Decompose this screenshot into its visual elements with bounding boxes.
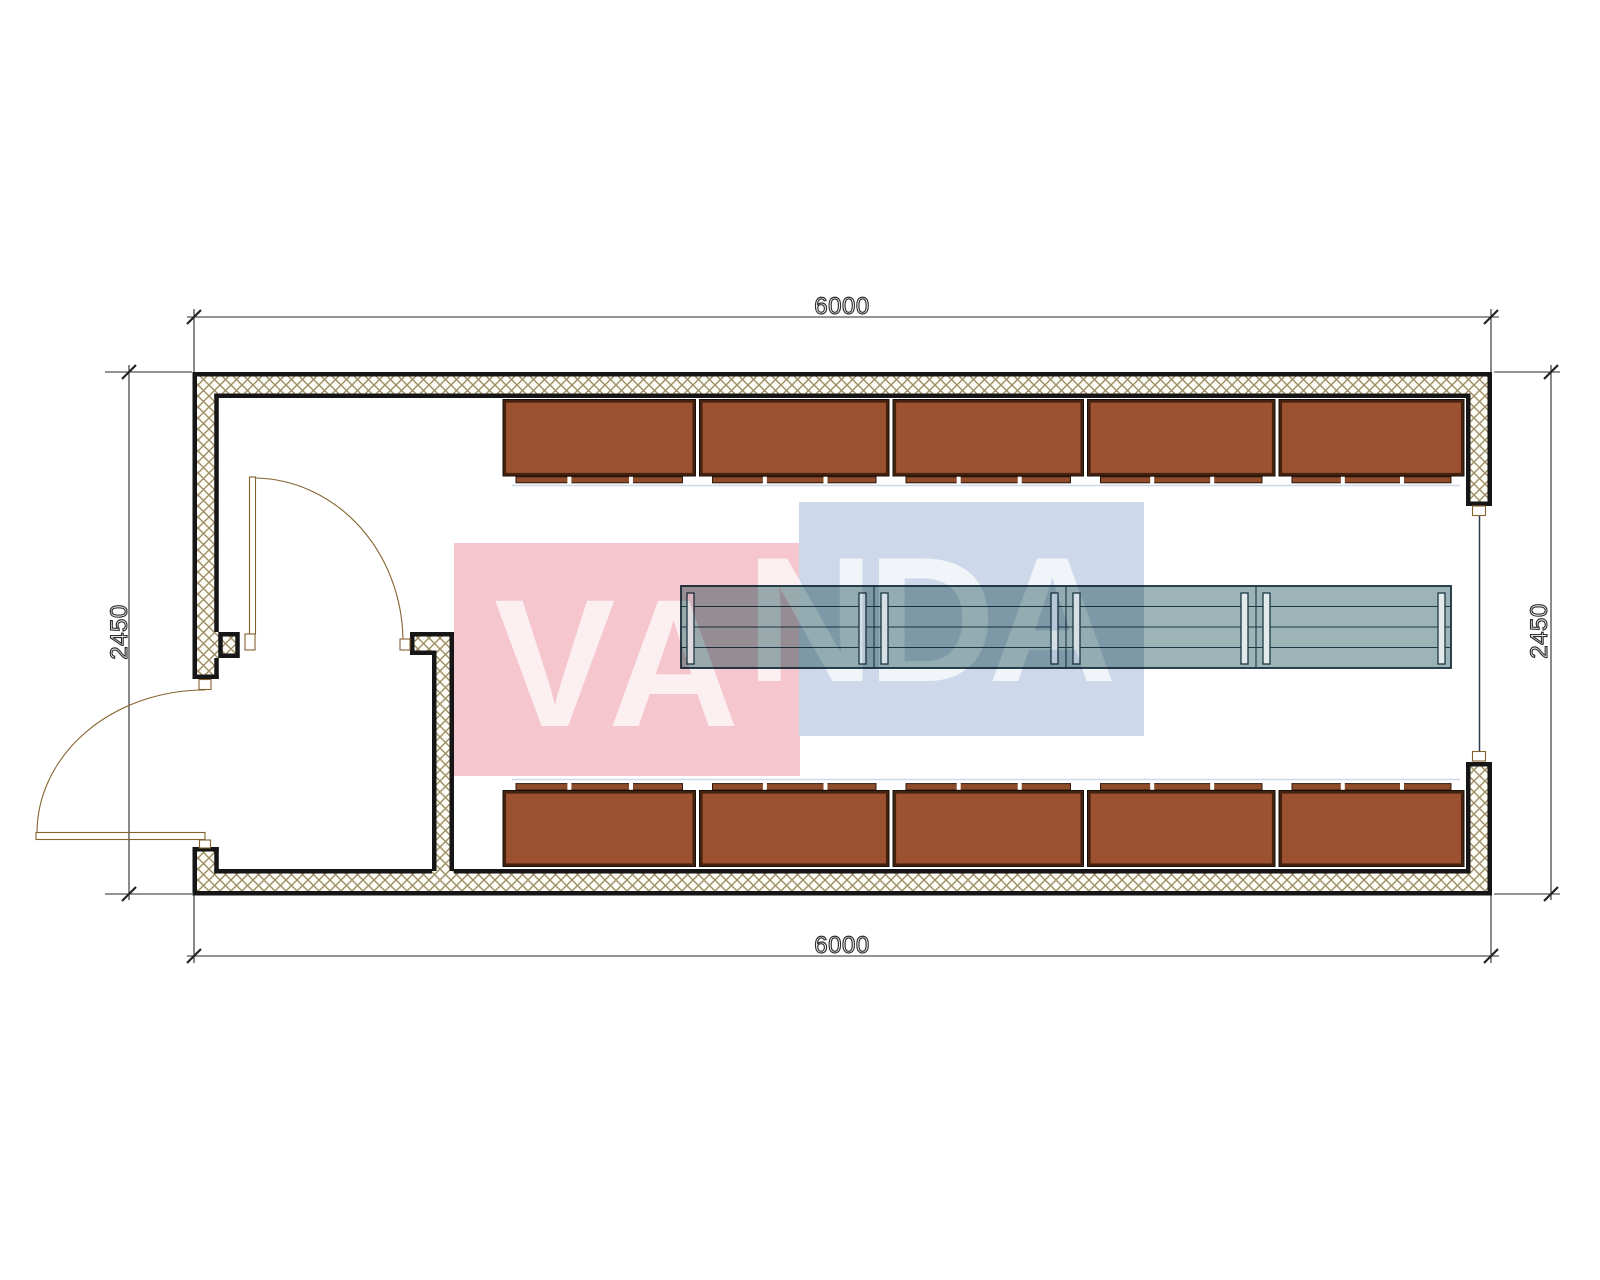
svg-text:2450: 2450 (106, 604, 133, 659)
svg-text:6000: 6000 (814, 293, 869, 320)
svg-text:6000: 6000 (814, 932, 869, 959)
svg-text:2450: 2450 (1526, 603, 1553, 658)
